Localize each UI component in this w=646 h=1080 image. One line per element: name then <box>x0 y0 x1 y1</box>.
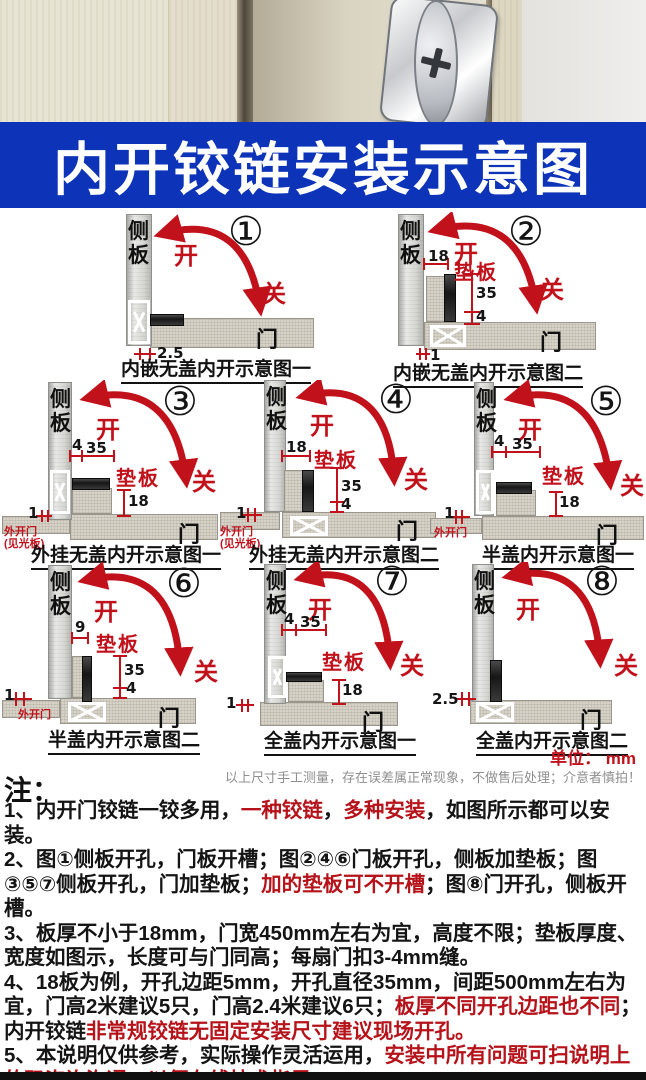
notes-section: 1、内开门铰链一铰多用，一种铰链，多种安装，如图所示都可以安装。2、图①侧板开孔… <box>4 799 644 1080</box>
unit-label: 单位： mm <box>550 744 636 769</box>
dimension-value: 1 <box>226 694 236 712</box>
note-highlight: 多种安装 <box>343 799 425 822</box>
title-banner: 内开铰链安装示意图 <box>0 122 646 208</box>
hinge-block <box>490 660 502 702</box>
hinge-block <box>150 314 184 326</box>
diagram-3: 侧板门开关垫板435181外开门 (见光板)③外挂无盖内开示意图一 <box>2 380 218 562</box>
hinge-block <box>496 482 532 494</box>
page-title: 内开铰链安装示意图 <box>53 124 593 206</box>
dimension-value: 35 <box>476 284 497 302</box>
diagram-6: 侧板门开关垫板93541外开门⑥半盖内开示意图二 <box>2 562 222 746</box>
hinge-block <box>72 478 110 490</box>
note-text: 1、内开门铰链一铰多用， <box>4 799 241 822</box>
drill-marker <box>290 516 328 536</box>
diagram-5: 侧板门开关垫板435181外开门⑤半盖内开示意图一 <box>430 380 646 562</box>
side-panel-label: 侧板 <box>50 388 74 436</box>
note-highlight: 一种铰链 <box>241 799 323 822</box>
diagram-number: ④ <box>378 380 414 420</box>
wood-panel <box>0 0 167 122</box>
drill-marker <box>128 300 150 344</box>
dimension-value: 1 <box>4 686 14 704</box>
open-label: 开 <box>174 236 198 271</box>
product-photo <box>0 0 646 122</box>
dimension-value: 4 <box>284 610 294 628</box>
pad-label: 垫板 <box>116 462 160 491</box>
hinge-block <box>286 672 322 682</box>
dimension-value: 18 <box>286 438 307 456</box>
close-label: 关 <box>262 274 286 309</box>
diagram-number: ⑦ <box>374 562 410 602</box>
dimension-value: 4 <box>126 679 136 697</box>
page: 内开铰链安装示意图 侧板门开关2.5①内嵌无盖内开示意图一侧板门开关垫板1835… <box>0 0 646 1080</box>
screw-icon <box>414 0 458 126</box>
hinge-block <box>82 656 92 702</box>
dimension-value: 18 <box>428 247 449 265</box>
side-panel-label: 侧板 <box>474 570 498 618</box>
pad-label: 垫板 <box>542 460 586 489</box>
dimension-value: 1 <box>236 504 246 522</box>
diagram-number: ⑧ <box>584 562 620 602</box>
drill-marker <box>476 470 494 514</box>
dimension-value: 4 <box>494 432 504 450</box>
diagram-8: 侧板门开关2.5⑧全盖内开示意图二 <box>432 562 646 746</box>
dimension-value: 9 <box>75 618 85 636</box>
note-item: 3、板厚不小于18mm，门宽450mm左右为宜，高度不限；垫板厚度、宽度如图示，… <box>4 922 644 971</box>
diagram-caption: 半盖内开示意图二 <box>48 725 200 755</box>
bottom-bar <box>0 1072 646 1080</box>
diagram-number: ② <box>508 212 544 252</box>
dimension-value: 35 <box>300 613 321 631</box>
dimension-value: 35 <box>86 439 107 457</box>
door-label: 门 <box>540 325 562 357</box>
dimension-value: 1 <box>28 504 38 522</box>
door-panel <box>482 516 644 540</box>
open-label: 开 <box>94 592 118 627</box>
dimension-value: 4 <box>341 495 351 513</box>
diagram-number: ⑥ <box>166 564 202 604</box>
pad-label: 垫板 <box>454 256 498 285</box>
corner-label: 外开门 <box>434 527 467 539</box>
open-label: 开 <box>516 590 540 625</box>
side-panel-label: 侧板 <box>400 220 424 268</box>
close-label: 关 <box>404 460 428 495</box>
dimension-value: 35 <box>341 477 362 495</box>
pad-label: 垫板 <box>96 628 140 657</box>
close-label: 关 <box>194 652 218 687</box>
note-highlight: 板厚不同开孔边距也不同 <box>395 995 621 1018</box>
hinge-block <box>302 470 314 512</box>
close-label: 关 <box>400 646 424 681</box>
side-panel-label: 侧板 <box>50 571 74 619</box>
note-text: 3、板厚不小于18mm，门宽450mm左右为宜，高度不限；垫板厚度、宽度如图示，… <box>4 922 637 970</box>
side-panel-label: 侧板 <box>266 386 290 434</box>
diagram-2: 侧板门开关垫板183541②内嵌无盖内开示意图二 <box>372 212 600 378</box>
note-item: 4、18板为例，开孔边距5mm，开孔直径35mm，间距500mm左右为宜，门高2… <box>4 971 644 1045</box>
diagram-4: 侧板门开关垫板183541外开门 (见光板)④外挂无盖内开示意图二 <box>220 380 436 562</box>
drill-marker <box>68 702 106 722</box>
note-item: 1、内开门铰链一铰多用，一种铰链，多种安装，如图所示都可以安装。 <box>4 799 644 848</box>
dimension-value: 18 <box>128 492 149 510</box>
panel-gap <box>237 0 253 122</box>
disclaimer-text: 以上尺寸手工测量，存在误差属正常现象，不做售后处理；介意者慎拍！ <box>225 767 641 786</box>
drill-marker <box>430 325 466 347</box>
close-label: 关 <box>614 646 638 681</box>
diagram-1: 侧板门开关2.5①内嵌无盖内开示意图一 <box>104 212 316 376</box>
drill-marker <box>50 470 70 514</box>
dimension-value: 2.5 <box>432 690 459 708</box>
wood-panel <box>522 0 646 122</box>
note-text: ， <box>323 799 344 822</box>
dimension-value: 4 <box>476 307 486 325</box>
diagram-number: ⑤ <box>588 382 624 422</box>
side-panel-label: 侧板 <box>476 388 500 436</box>
close-label: 关 <box>540 270 564 305</box>
dimension-value: 1 <box>444 504 454 522</box>
drill-marker <box>476 702 514 722</box>
dimension-value: 18 <box>342 681 363 699</box>
pad-block <box>288 680 324 702</box>
close-label: 关 <box>192 462 216 497</box>
dimension-value: 35 <box>512 435 533 453</box>
pad-label: 垫板 <box>314 444 358 473</box>
note-highlight: 加的垫板可不开槽 <box>261 873 425 896</box>
diagram-number: ① <box>228 212 264 252</box>
wood-panel <box>168 0 238 122</box>
drill-marker <box>268 656 286 698</box>
corner-label: 外开门 <box>18 709 51 721</box>
dimension-value: 35 <box>124 661 145 679</box>
dimension-value: 4 <box>72 436 82 454</box>
dimension-value: 18 <box>559 493 580 511</box>
door-label: 门 <box>256 322 278 354</box>
diagram-7: 侧板门开关垫板435181⑦全盖内开示意图一 <box>224 562 437 746</box>
diagram-caption: 全盖内开示意图一 <box>264 726 416 756</box>
note-highlight: 非常规铰链无固定安装尺寸建议现场开孔。 <box>86 1020 476 1043</box>
note-text: 5、本说明仅供参考，实际操作灵活运用， <box>4 1044 384 1067</box>
side-panel-label: 侧板 <box>128 220 152 268</box>
pad-block <box>72 488 112 514</box>
open-label: 开 <box>310 406 334 441</box>
diagram-number: ③ <box>162 382 198 422</box>
note-item: 2、图①侧板开孔，门板开槽；图②④⑥门板开孔，侧板加垫板；图③⑤⑦侧板开孔，门加… <box>4 848 644 922</box>
close-label: 关 <box>620 466 644 501</box>
pad-label: 垫板 <box>322 646 366 675</box>
